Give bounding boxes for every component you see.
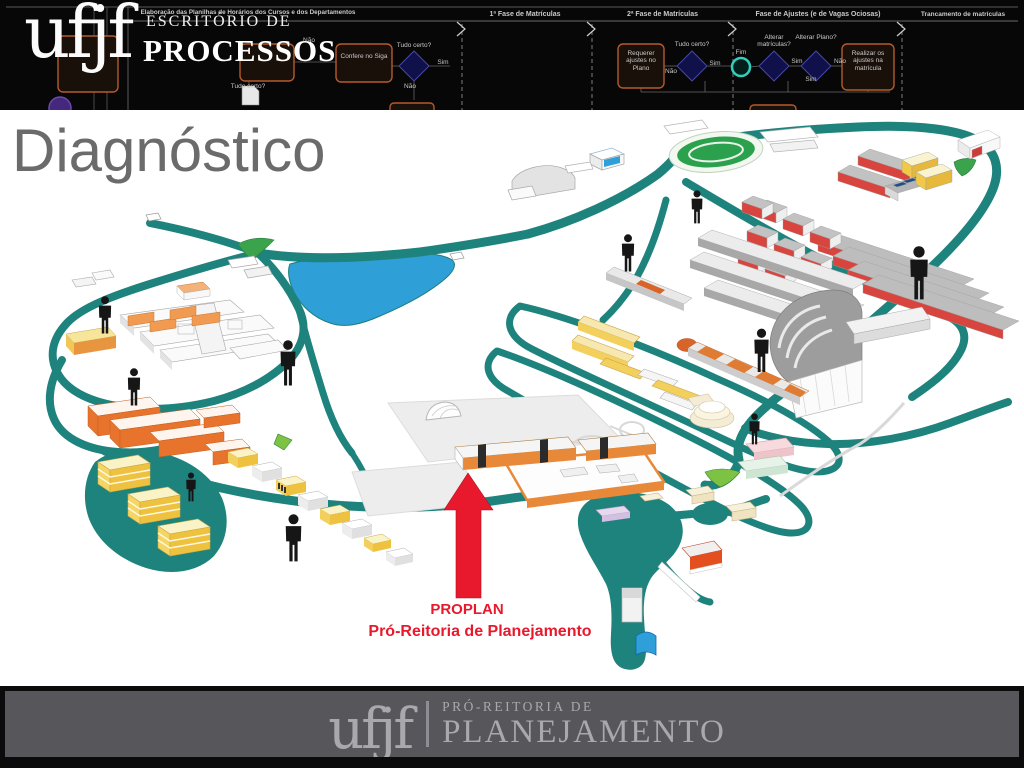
footer-ufjf-logo: ufjf bbox=[328, 702, 411, 757]
ufjf-logo: ufjf bbox=[24, 0, 130, 74]
lane-title-process: Elaboração das Planilhas de Horários dos… bbox=[136, 9, 360, 16]
edge-label-nao-2: Não bbox=[398, 83, 422, 90]
red-hub-building bbox=[682, 541, 722, 574]
lake bbox=[289, 253, 455, 326]
edge-label-sim-1: Sim bbox=[432, 59, 454, 66]
person-icon bbox=[286, 514, 302, 561]
campus-map: PROPLAN Pró-Reitoria de Planejamento bbox=[0, 110, 1024, 686]
footer-org-line1: PRÓ-REITORIA DE bbox=[442, 699, 726, 715]
edge-label-sim-4: Sim bbox=[800, 76, 822, 83]
lane-title-1: 1ª Fase de Matrículas bbox=[455, 11, 595, 19]
edge-label-nao-1: Não bbox=[297, 37, 321, 44]
chevron-right-icon bbox=[457, 22, 905, 36]
edge-label-sim-2: Sim bbox=[704, 60, 726, 67]
person-icon bbox=[754, 329, 768, 372]
footer-divider bbox=[426, 701, 429, 747]
process-banner: ufjf ESCRITÓRIO DE PROCESSOS Elaboração … bbox=[0, 0, 1024, 110]
slide: ufjf ESCRITÓRIO DE PROCESSOS Elaboração … bbox=[0, 0, 1024, 768]
yellow-building-left bbox=[66, 327, 116, 355]
gateway-label-alterar-plano: Alterar Plano? bbox=[795, 34, 837, 41]
bus-stop-icon bbox=[636, 632, 656, 655]
proplan-label: PROPLAN bbox=[430, 601, 503, 618]
flowchart-gateways bbox=[399, 51, 831, 81]
footer-bar: ufjf PRÓ-REITORIA DE PLANEJAMENTO bbox=[5, 691, 1019, 757]
roundabout bbox=[692, 503, 728, 525]
start-event-icon bbox=[49, 97, 71, 110]
gateway-label-tudo-certo-1: Tudo certo? bbox=[390, 42, 438, 49]
mint-building bbox=[738, 456, 788, 479]
left-campus-buildings bbox=[66, 270, 288, 370]
round-cream-building bbox=[688, 394, 734, 428]
edge-label-sim-3: Sim bbox=[786, 58, 808, 65]
footer-org-line2: PLANEJAMENTO bbox=[442, 715, 726, 750]
footer: ufjf PRÓ-REITORIA DE PLANEJAMENTO bbox=[0, 686, 1024, 768]
end-event-icon bbox=[732, 58, 750, 76]
gateway-label-tudo-certo-2: Tudo certo? bbox=[224, 83, 272, 90]
task-requerer-label: Requerer ajustes no Plano bbox=[620, 50, 662, 72]
bus-hub bbox=[578, 492, 683, 670]
gateway-label-alterar-matriculas: Alterar matrículas? bbox=[751, 34, 797, 49]
lane-title-3: Fase de Ajustes (e de Vagas Ociosas) bbox=[738, 11, 898, 19]
person-icon bbox=[622, 234, 634, 271]
lane-title-4: Trancamento de matrículas bbox=[904, 11, 1022, 18]
end-event-label: Fim bbox=[731, 49, 751, 56]
gateway-label-tudo-certo-3: Tudo certo? bbox=[668, 41, 716, 48]
task-confere-label: Confere no Siga bbox=[338, 53, 390, 60]
edge-label-nao-4: Não bbox=[828, 58, 852, 65]
orange-roof-building bbox=[177, 282, 210, 300]
proplan-sublabel: Pró-Reitoria de Planejamento bbox=[368, 623, 591, 640]
lane-title-2: 2ª Fase de Matrículas bbox=[595, 11, 730, 19]
edge-label-nao-3: Não bbox=[659, 68, 683, 75]
